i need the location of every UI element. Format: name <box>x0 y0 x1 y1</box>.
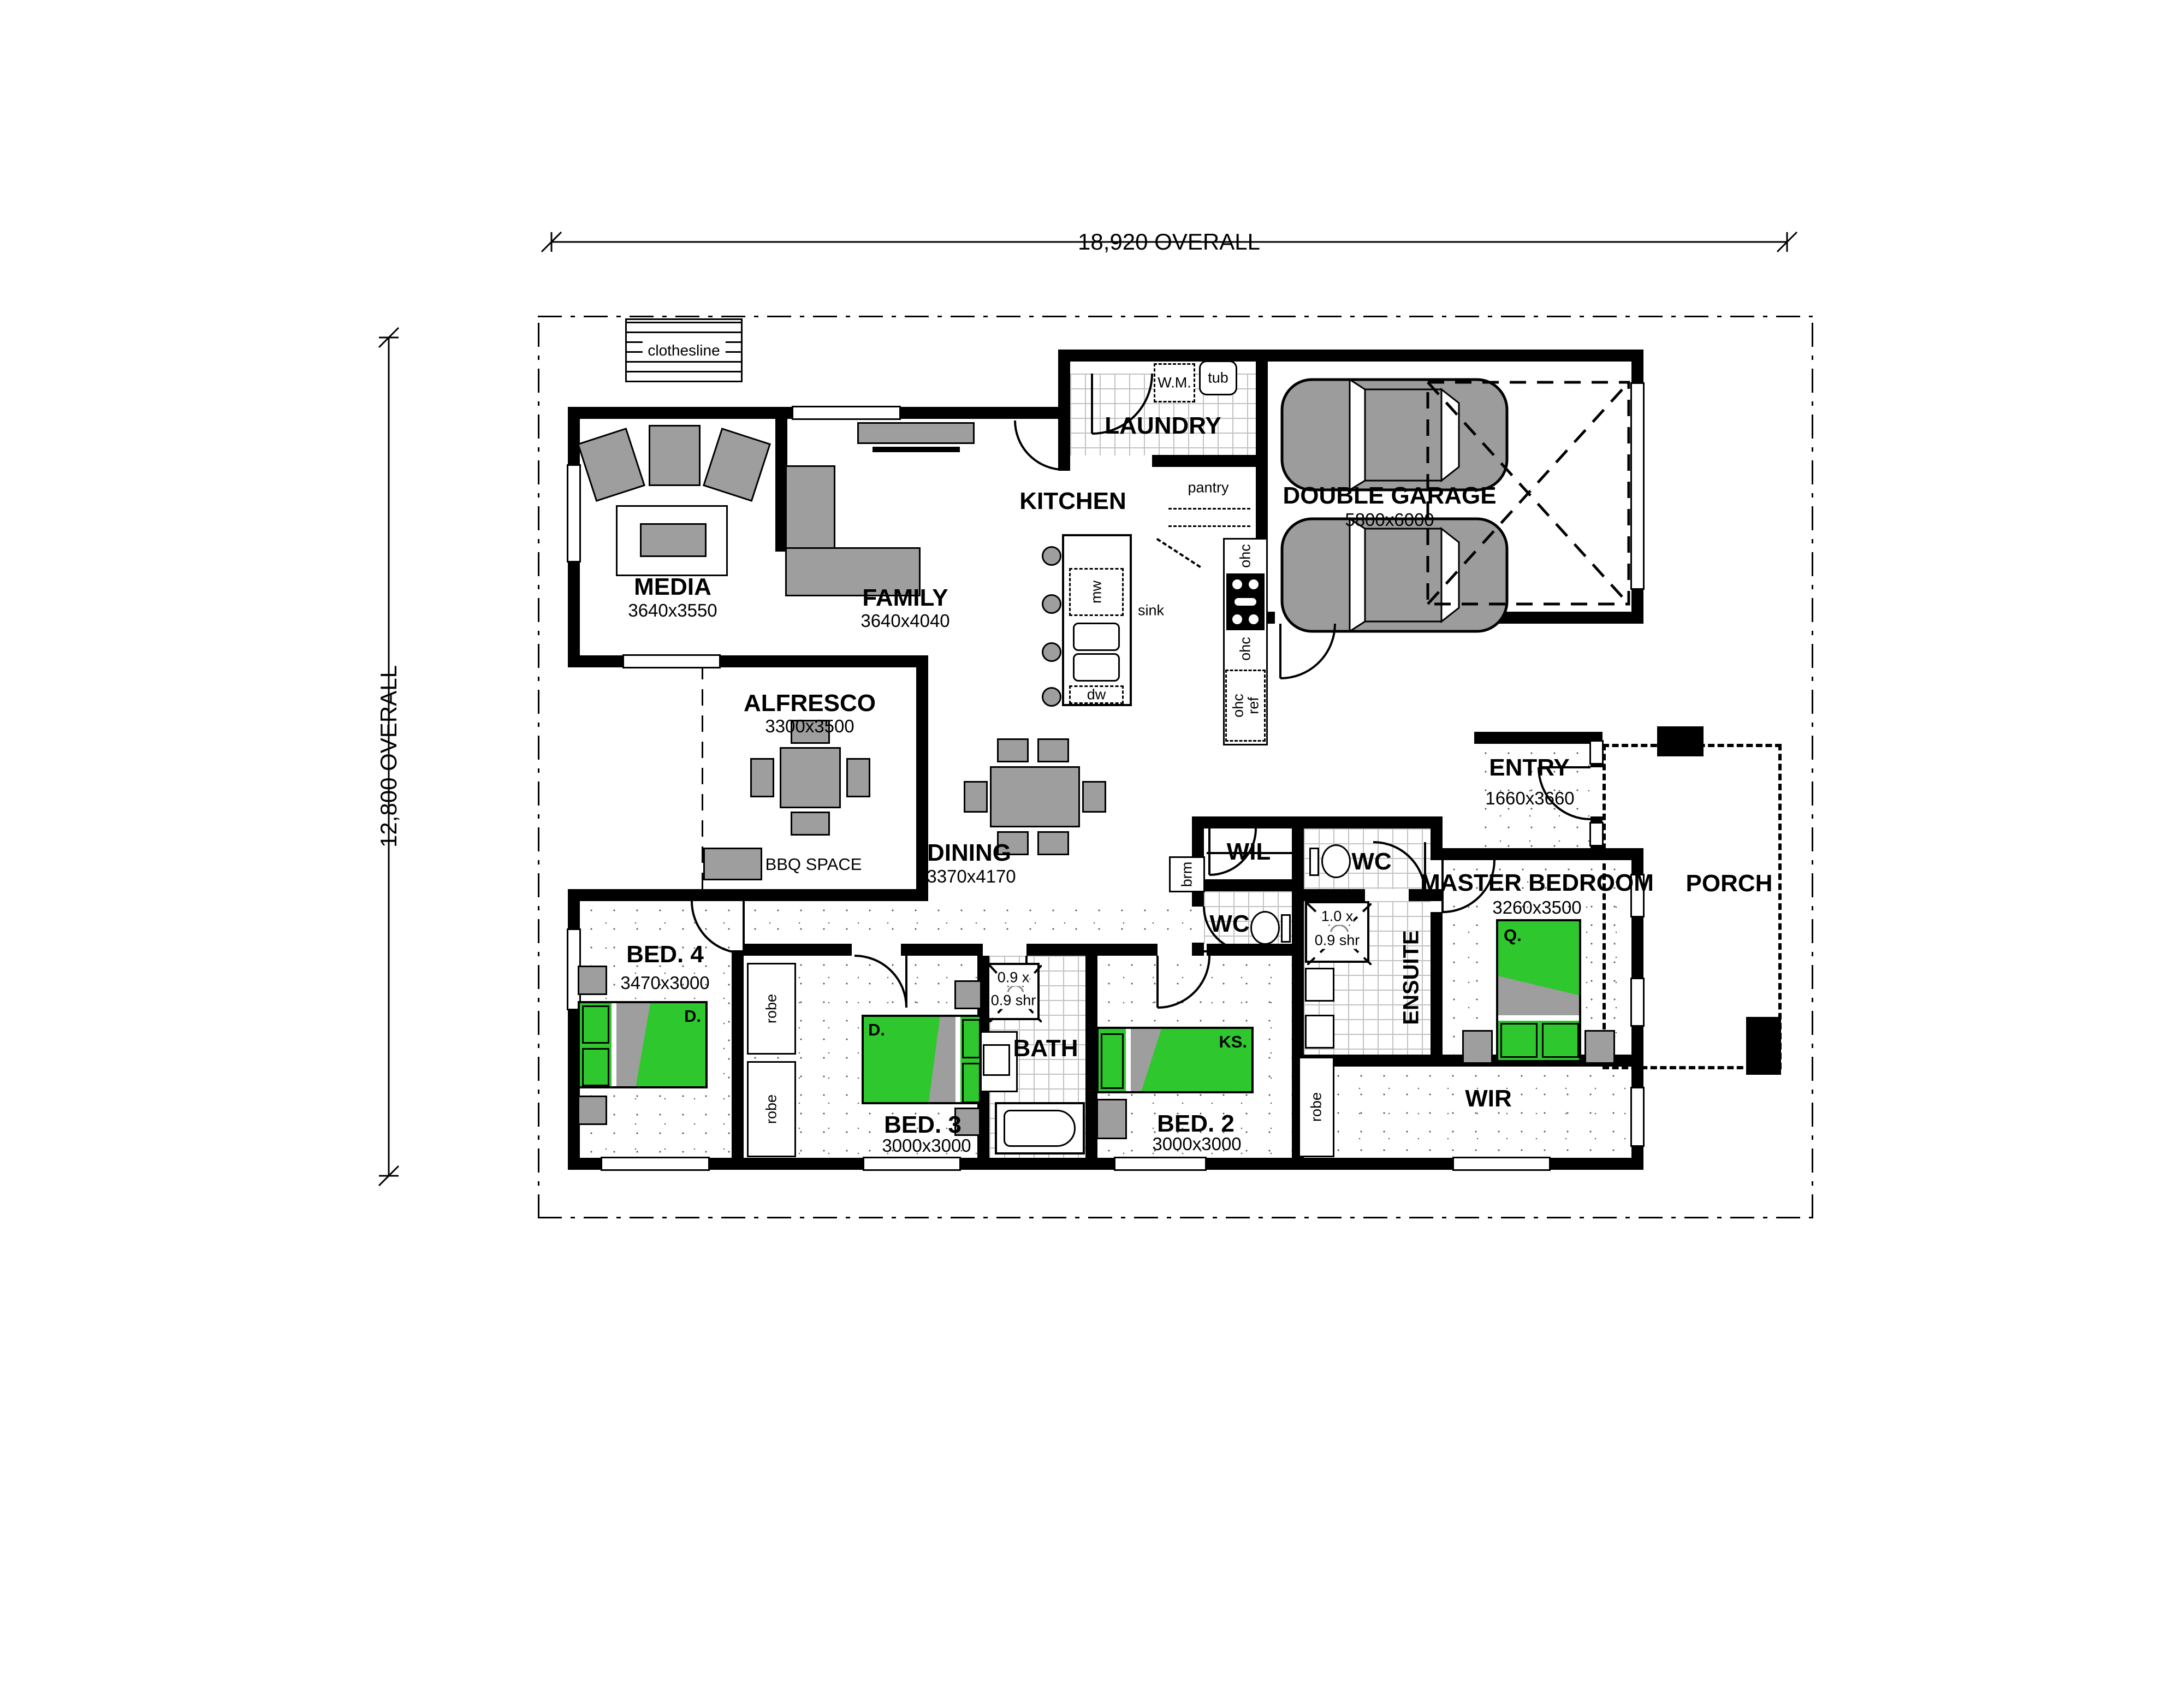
bedside-table <box>1584 1030 1615 1064</box>
sliding-door <box>918 726 922 784</box>
outdoor-table <box>780 747 841 808</box>
wall <box>732 889 744 901</box>
sink-label: sink <box>1138 602 1164 619</box>
burner <box>1231 578 1244 591</box>
pantry-shelf <box>1168 508 1250 510</box>
bed-size-tag: D. <box>868 1020 885 1040</box>
room-size-alfresco: 3300x3500 <box>765 716 854 737</box>
theater-chair <box>703 428 771 502</box>
room-label-ensuite: ENSUITE <box>1399 930 1424 1025</box>
room-size-bed4: 3470x3000 <box>620 973 709 993</box>
stool <box>1042 546 1061 566</box>
room-label-wir: WIR <box>1465 1087 1512 1111</box>
room-size-media: 3640x3550 <box>628 600 717 621</box>
toilet-bowl <box>1321 844 1351 878</box>
robe-label: robe <box>763 1094 780 1124</box>
room-label-bath: BATH <box>1013 1037 1078 1061</box>
wall <box>1207 944 1304 956</box>
bedside-table <box>1096 1099 1127 1139</box>
robe-label: robe <box>1308 1092 1325 1122</box>
pantry-door <box>1156 538 1201 568</box>
sliding-door <box>726 656 784 660</box>
room-size-entry: 1660x3660 <box>1485 788 1574 809</box>
window <box>622 654 721 668</box>
bed-queen: Q. <box>1496 919 1581 1062</box>
vanity-basin <box>1305 968 1334 1002</box>
clothesline-label: clothesline <box>642 341 725 360</box>
sliding-door <box>924 778 928 836</box>
wall <box>1631 362 1643 382</box>
theater-chair <box>577 428 645 502</box>
room-label-entry: ENTRY <box>1489 756 1570 780</box>
shower-size-label: 0.9 shr <box>1315 932 1360 949</box>
toilet-bowl <box>1250 911 1280 945</box>
sliding-door <box>778 663 835 667</box>
wir-floor <box>1304 1067 1631 1158</box>
wall <box>1058 362 1070 471</box>
wall <box>1431 912 1443 1067</box>
robe-label: robe <box>763 994 780 1023</box>
floor-plan: 18,920 OVERALL 12,800 OVERALL clotheslin… <box>0 0 2184 1693</box>
room-label-garage: DOUBLE GARAGE <box>1283 484 1496 508</box>
bbq-grill <box>703 848 762 880</box>
bed-double: D. <box>578 1001 708 1088</box>
lot-boundary-left <box>538 316 539 1218</box>
room-label-media: MEDIA <box>634 575 711 599</box>
room-label-kitchen: KITCHEN <box>1019 489 1126 513</box>
bedside-table <box>954 980 982 1009</box>
wall <box>1085 956 1097 1170</box>
stool <box>1042 594 1061 614</box>
room-size-dining: 3370x4170 <box>927 866 1016 887</box>
lot-boundary-top <box>538 316 1813 317</box>
bed-size-tag: Q. <box>1504 926 1522 945</box>
entry-sidelight <box>1589 822 1604 846</box>
shower-size-label: 0.9 x <box>998 969 1030 986</box>
bedside-table <box>578 1096 607 1125</box>
ref-label: ref <box>1245 697 1262 714</box>
room-label-dining: DINING <box>927 841 1011 865</box>
outdoor-chair <box>791 812 830 836</box>
room-label-wc: WC <box>1351 850 1391 874</box>
wall <box>1332 612 1643 624</box>
theater-chair <box>649 425 701 486</box>
room-label-family: FAMILY <box>862 586 948 610</box>
outdoor-chair <box>846 758 870 797</box>
wall <box>1304 889 1365 901</box>
tub-label: tub <box>1208 370 1228 387</box>
burner <box>1247 578 1260 591</box>
wall <box>1192 943 1204 956</box>
dining-chair <box>1037 831 1069 855</box>
bed-size-tag: KS. <box>1219 1032 1247 1052</box>
bathtub-inner <box>1004 1110 1076 1147</box>
dishwasher-label: dw <box>1087 686 1106 703</box>
hall-floor <box>744 901 1192 944</box>
window <box>1114 1157 1207 1171</box>
bed-size-tag: D. <box>684 1007 701 1026</box>
shower-size-label: 0.9 shr <box>991 992 1036 1009</box>
burner <box>1247 613 1260 626</box>
room-label-wc2: WC <box>1209 912 1249 936</box>
pantry-label: pantry <box>1188 480 1228 496</box>
broom-label: brm <box>1179 862 1196 887</box>
wall <box>901 944 983 956</box>
room-label-master: MASTER BEDROOM <box>1420 871 1654 895</box>
porch-pillar <box>1657 726 1704 756</box>
room-label-wil: WIL <box>1227 840 1271 864</box>
room-label-porch: PORCH <box>1686 872 1773 896</box>
wall <box>1474 732 1603 744</box>
toilet-tank <box>1281 914 1291 943</box>
lot-boundary-bottom <box>538 1217 1813 1218</box>
wall <box>1631 590 1643 624</box>
sink-bowl <box>1073 653 1120 682</box>
room-label-laundry: LAUNDRY <box>1105 414 1221 438</box>
porch-pillar <box>1746 1017 1781 1075</box>
wall <box>1152 455 1268 467</box>
sink-bowl <box>1073 623 1120 651</box>
ohc-label: ohc <box>1237 637 1254 661</box>
window <box>792 406 901 420</box>
dimension-width: 18,920 OVERALL <box>1070 229 1268 255</box>
dining-chair <box>997 738 1029 762</box>
dining-table <box>990 766 1080 827</box>
wall <box>744 944 852 956</box>
bedside-table <box>1462 1030 1493 1064</box>
outdoor-chair <box>750 758 774 797</box>
vanity-basin <box>983 1044 1010 1076</box>
window <box>863 1157 961 1171</box>
wall <box>732 950 744 1170</box>
dining-chair <box>964 781 988 813</box>
ohc-label: ohc <box>1237 544 1254 568</box>
tv <box>873 447 960 452</box>
wall <box>1192 816 1443 828</box>
room-size-bed3: 3000x3000 <box>882 1135 971 1156</box>
ohc-label: ohc <box>1230 694 1247 718</box>
room-label-alfresco: ALFRESCO <box>744 691 876 715</box>
window <box>1630 1087 1645 1147</box>
shower-size-label: 1.0 x <box>1321 908 1354 925</box>
room-label-bed4: BED. 4 <box>626 943 704 967</box>
room-size-master: 3260x3500 <box>1492 897 1581 918</box>
room-size-family: 3640x4040 <box>860 611 949 631</box>
tv-unit <box>857 422 975 444</box>
burner-center <box>1233 596 1258 607</box>
bed-double: D. <box>862 1015 982 1104</box>
stool <box>1042 642 1061 662</box>
label-bbq-space: BBQ SPACE <box>765 855 862 874</box>
dining-chair <box>1082 781 1106 813</box>
room-label-bed3: BED. 3 <box>884 1113 962 1137</box>
washing-machine-label: W.M. <box>1158 375 1191 392</box>
room-size-garage: 5800x6000 <box>1345 510 1434 530</box>
wall <box>1026 944 1158 956</box>
window <box>601 1157 710 1171</box>
stool <box>1042 687 1061 707</box>
window <box>567 464 581 563</box>
lot-boundary-right <box>1812 316 1813 1218</box>
room-size-bed2: 3000x3000 <box>1152 1134 1241 1155</box>
wall <box>1431 816 1443 848</box>
room-label-bed2: BED. 2 <box>1157 1112 1235 1136</box>
wall <box>1204 879 1292 891</box>
garage-door-panel <box>1630 382 1645 590</box>
ottoman <box>640 523 707 557</box>
entry-sidelight <box>1589 740 1604 765</box>
wall <box>1058 350 1643 362</box>
pantry-shelf <box>1168 525 1250 527</box>
microwave-label: mw <box>1088 581 1105 603</box>
bedside-table <box>578 966 607 995</box>
vanity-basin <box>1305 1015 1334 1049</box>
clothesline: clothesline <box>625 318 743 382</box>
burner <box>1231 613 1244 626</box>
window <box>1452 1157 1551 1171</box>
bed-king-single: KS. <box>1096 1027 1254 1093</box>
dimension-height: 12,800 OVERALL <box>376 658 402 855</box>
toilet-tank <box>1309 848 1319 876</box>
dining-chair <box>1037 738 1069 762</box>
